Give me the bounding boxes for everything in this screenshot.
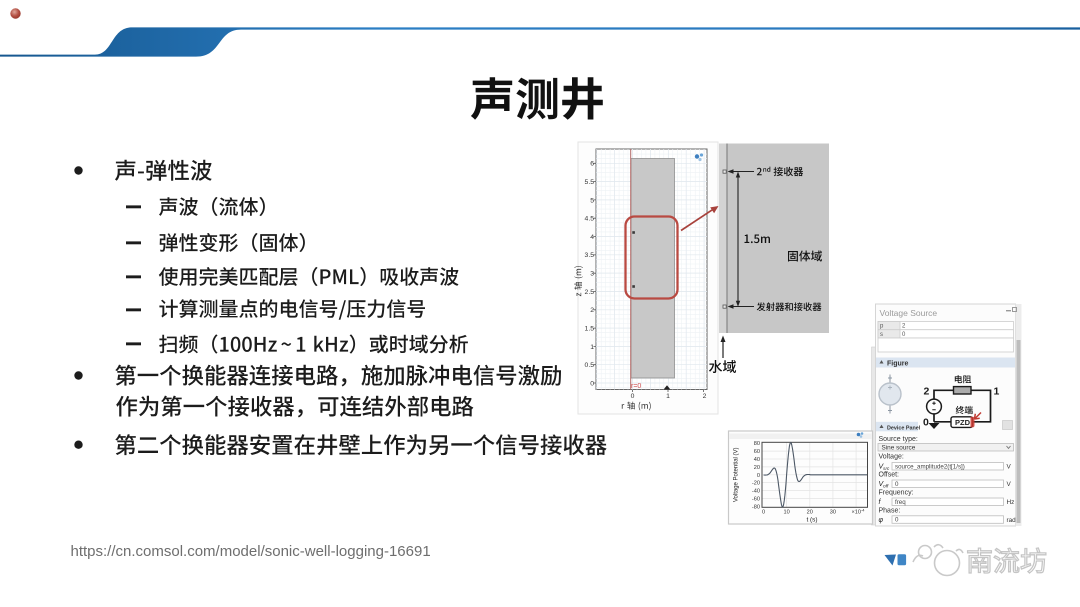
svg-text:20: 20: [754, 465, 760, 471]
svg-text:s: s: [880, 332, 883, 338]
svg-text:2: 2: [924, 386, 930, 398]
svg-text:4: 4: [590, 234, 594, 241]
svg-text:Hz: Hz: [1007, 499, 1015, 506]
svg-text:Sine source: Sine source: [882, 445, 916, 452]
svg-text:0: 0: [631, 393, 635, 400]
svg-text:-40: -40: [752, 489, 760, 495]
svg-text:source_amplitude2(t[1/s]): source_amplitude2(t[1/s]): [895, 463, 965, 470]
svg-text:40: 40: [754, 457, 760, 463]
svg-text:-60: -60: [752, 496, 760, 502]
svg-text:0.5: 0.5: [585, 362, 595, 369]
svg-text:https://cn.comsol.com/model/so: https://cn.comsol.com/model/sonic-well-l…: [71, 543, 431, 560]
svg-text:10: 10: [783, 510, 789, 516]
svg-text:4.5: 4.5: [585, 216, 595, 223]
svg-text:Frequency:: Frequency:: [879, 489, 914, 496]
svg-text:φ: φ: [879, 517, 884, 524]
svg-text:2.5: 2.5: [585, 289, 595, 296]
svg-text:Voltage:: Voltage:: [879, 454, 904, 461]
svg-text:80: 80: [754, 441, 760, 447]
svg-text:3: 3: [590, 271, 594, 278]
svg-text:t (s): t (s): [806, 517, 817, 524]
svg-text:Source type:: Source type:: [879, 436, 918, 443]
svg-text:0: 0: [590, 380, 594, 387]
svg-text:60: 60: [754, 449, 760, 455]
svg-text:5: 5: [590, 197, 594, 204]
svg-text:V: V: [1007, 481, 1012, 488]
svg-text:Figure: Figure: [887, 360, 908, 367]
svg-text:1: 1: [590, 344, 594, 351]
svg-text:0: 0: [762, 510, 765, 516]
svg-text:0: 0: [895, 517, 899, 524]
svg-text:-80: -80: [752, 504, 760, 510]
svg-text:r=0: r=0: [631, 383, 641, 390]
svg-text:freq: freq: [895, 499, 906, 506]
svg-text:Voltage Potential (V): Voltage Potential (V): [734, 447, 740, 502]
svg-text:2: 2: [590, 307, 594, 314]
svg-text:5.5: 5.5: [585, 179, 595, 186]
svg-text:2: 2: [703, 393, 707, 400]
svg-text:1: 1: [666, 393, 670, 400]
svg-text:0: 0: [923, 417, 929, 429]
svg-text:30: 30: [830, 510, 836, 516]
svg-text:PZD: PZD: [955, 418, 971, 427]
svg-text:Voltage Source: Voltage Source: [880, 308, 938, 318]
svg-text:20: 20: [807, 510, 813, 516]
svg-text:Offset:: Offset:: [879, 471, 900, 478]
svg-text:0: 0: [757, 473, 760, 479]
svg-text:Phase:: Phase:: [879, 507, 901, 514]
svg-text:0: 0: [895, 481, 899, 488]
svg-text:rad: rad: [1007, 517, 1017, 524]
svg-text:-20: -20: [752, 481, 760, 487]
svg-text:1.5: 1.5: [585, 326, 595, 333]
svg-text:6: 6: [590, 161, 594, 168]
svg-text:Device Panel: Device Panel: [887, 425, 921, 431]
svg-text:1: 1: [994, 386, 1000, 398]
svg-text:3.5: 3.5: [585, 252, 595, 259]
svg-text:V: V: [1007, 464, 1012, 471]
